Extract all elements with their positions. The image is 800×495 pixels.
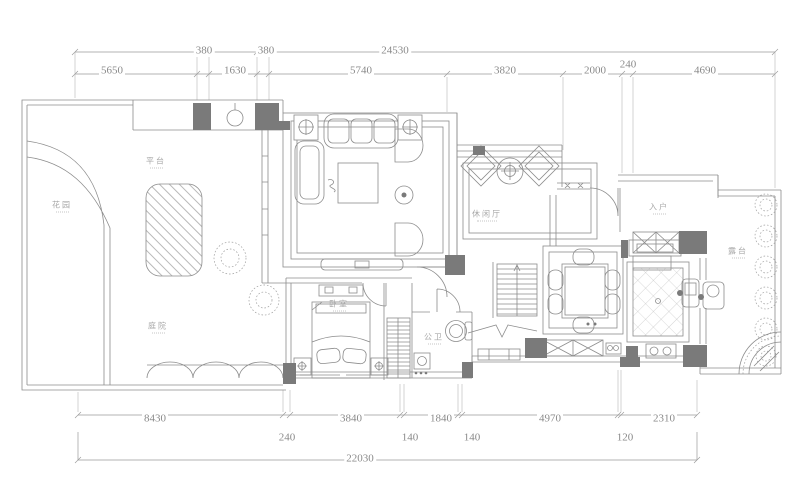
dim-label-4690: 4690 <box>692 66 718 77</box>
room-label-garden: 花园 <box>52 200 72 213</box>
room-label-terrace: 露台 <box>728 246 748 259</box>
stair-break-line <box>468 325 537 337</box>
dim-label-5740: 5740 <box>348 66 374 77</box>
dim-label-2000: 2000 <box>582 66 608 77</box>
dim-label-2310: 2310 <box>651 414 677 425</box>
dining-chair <box>548 270 563 290</box>
wash-basin <box>414 353 430 369</box>
pendant-light-icon <box>227 110 243 126</box>
dining-chair <box>548 294 563 314</box>
shrub-icon <box>214 242 246 274</box>
pillow <box>342 348 366 364</box>
hedge-scallops <box>147 362 283 378</box>
bedroom <box>286 278 412 380</box>
dim-label-140-b: 140 <box>462 433 483 444</box>
floor-lamp-icon <box>328 180 335 192</box>
room-label-platform: 平台 <box>146 156 166 169</box>
hatched-planter <box>146 184 202 276</box>
dim-label-380-a: 380 <box>194 46 215 57</box>
coffee-table <box>338 163 378 203</box>
lounge-chair <box>519 146 559 186</box>
nightstand <box>294 358 311 375</box>
dim-label-120: 120 <box>615 433 636 444</box>
dim-label-8430: 8430 <box>142 414 168 425</box>
armchair <box>395 223 423 256</box>
toilet <box>446 321 467 342</box>
dining-room <box>543 246 623 356</box>
dining-chair <box>573 249 594 265</box>
dim-label-3820: 3820 <box>492 66 518 77</box>
outdoor-sink <box>703 282 724 309</box>
nightstand <box>371 358 388 375</box>
lounge <box>457 145 618 246</box>
dim-label-4970: 4970 <box>537 414 563 425</box>
dim-label-380-b: 380 <box>256 46 277 57</box>
dining-chair <box>573 317 594 333</box>
room-label-lounge: 休闲厅 <box>472 209 502 222</box>
kitchen <box>627 240 724 358</box>
room-label-bedroom: 卧室 <box>329 299 349 312</box>
dim-label-overall-bottom: 22030 <box>344 454 376 465</box>
dim-label-1630: 1630 <box>222 66 248 77</box>
door-swing <box>417 267 447 297</box>
dim-label-240-top: 240 <box>618 60 639 71</box>
room-label-bath: 公卫 <box>424 332 444 345</box>
room-label-entry: 入户 <box>649 202 669 215</box>
west-facade <box>262 130 291 283</box>
room-label-courtyard: 庭院 <box>148 321 168 334</box>
kitchen-tile-floor <box>633 268 683 336</box>
dim-label-140-a: 140 <box>400 433 421 444</box>
pillow <box>316 348 340 364</box>
dim-label-overall-top: 24530 <box>379 46 411 57</box>
dining-chair <box>605 270 620 290</box>
door-swing <box>363 283 386 306</box>
dim-label-3840: 3840 <box>338 414 364 425</box>
chaise-sofa <box>295 141 324 204</box>
dining-table <box>562 264 608 318</box>
courtyard-garden <box>22 100 286 390</box>
dim-label-1840: 1840 <box>428 414 454 425</box>
dim-label-240-bottom: 240 <box>277 433 298 444</box>
living-room <box>283 113 457 297</box>
dining-chair <box>605 294 620 314</box>
floor-plan-canvas: 380 380 24530 5650 1630 5740 3820 2000 2… <box>0 0 800 495</box>
dim-label-5650: 5650 <box>99 66 125 77</box>
secondary-stairs <box>387 318 410 378</box>
door-swing <box>437 289 460 312</box>
shrub-icon <box>249 285 279 315</box>
entry-door-swing <box>590 188 618 216</box>
